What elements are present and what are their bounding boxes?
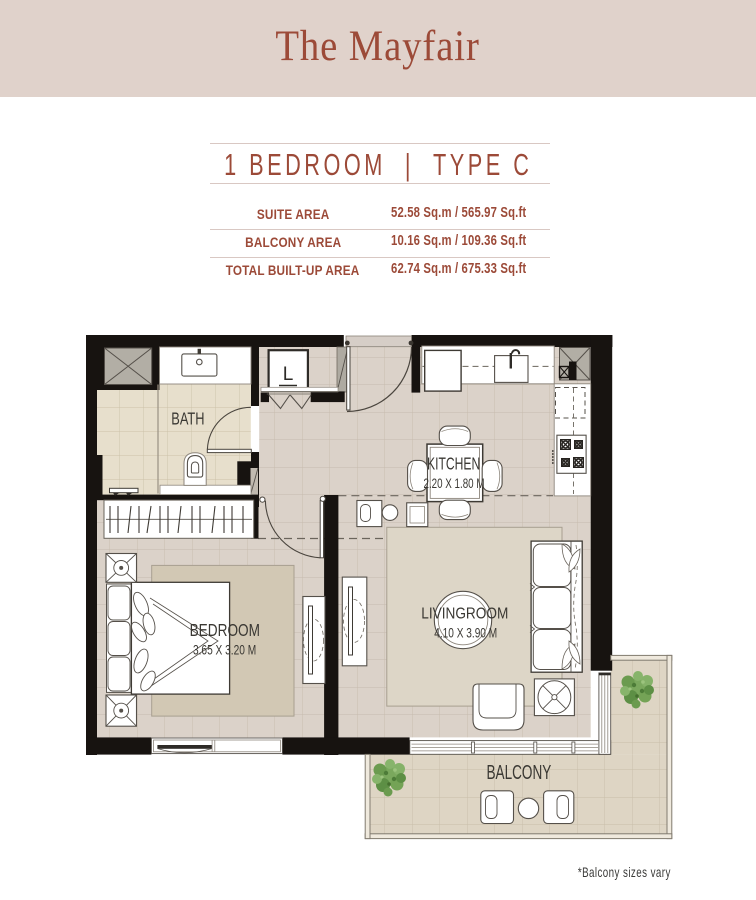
svg-text:L: L — [283, 364, 294, 385]
svg-text:4.10 X 3.90 M: 4.10 X 3.90 M — [434, 626, 497, 641]
svg-text:BATH: BATH — [171, 408, 204, 428]
svg-text:LIVINGROOM: LIVINGROOM — [421, 604, 508, 622]
svg-text:BEDROOM: BEDROOM — [190, 620, 260, 640]
svg-text:2.20 X 1.80 M: 2.20 X 1.80 M — [424, 476, 485, 491]
svg-text:3.65 X 3.20 M: 3.65 X 3.20 M — [193, 642, 256, 657]
svg-text:BALCONY: BALCONY — [487, 762, 552, 784]
svg-text:KITCHEN: KITCHEN — [427, 454, 480, 473]
